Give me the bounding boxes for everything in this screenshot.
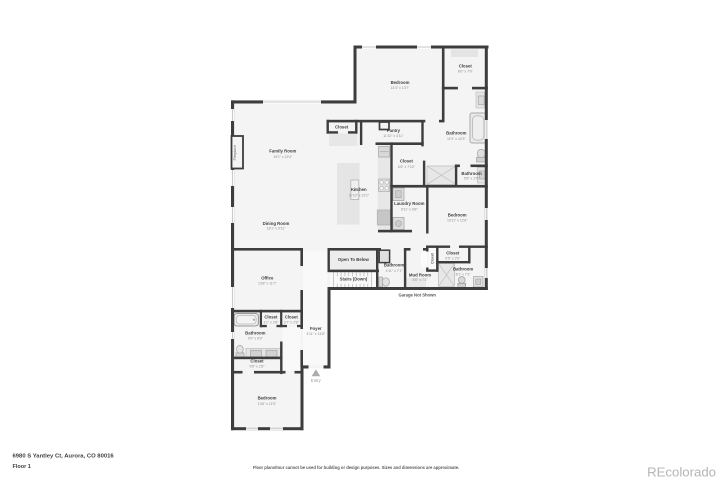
svg-text:6'11" x 8'8": 6'11" x 8'8" <box>401 207 418 211</box>
svg-text:Closet: Closet <box>250 358 264 363</box>
svg-text:5'5" x 2'0": 5'5" x 2'0" <box>445 256 461 260</box>
svg-text:Open To Below: Open To Below <box>338 257 370 262</box>
svg-text:Garage Not Shown: Garage Not Shown <box>398 292 436 297</box>
svg-text:Mud Room: Mud Room <box>409 273 431 278</box>
svg-text:5'6" x 7'1": 5'6" x 7'1" <box>412 278 428 282</box>
svg-text:Closet: Closet <box>431 252 435 264</box>
svg-text:10'11" x 12'8": 10'11" x 12'8" <box>447 219 468 223</box>
svg-text:Office: Office <box>261 276 274 281</box>
svg-text:Closet: Closet <box>264 314 278 319</box>
svg-text:REcolorado: REcolorado <box>647 465 716 480</box>
svg-text:Floor 1: Floor 1 <box>13 464 31 470</box>
svg-text:Bathroom: Bathroom <box>446 131 466 136</box>
svg-text:Laundry Room: Laundry Room <box>394 201 424 206</box>
svg-text:4'11" x 7'1": 4'11" x 7'1" <box>386 269 403 273</box>
svg-text:11'9" x 10'3": 11'9" x 10'3" <box>447 137 466 141</box>
svg-text:13'8" x 11'7": 13'8" x 11'7" <box>258 282 277 286</box>
svg-text:Bedroom: Bedroom <box>448 213 467 218</box>
svg-text:18'1" x 9'11": 18'1" x 9'11" <box>267 227 286 231</box>
svg-text:Bathroom: Bathroom <box>453 266 473 271</box>
svg-text:8'0" x 7'6": 8'0" x 7'6" <box>458 69 474 73</box>
svg-text:Dining Room: Dining Room <box>263 221 290 226</box>
svg-text:Closet: Closet <box>446 251 460 256</box>
svg-text:8'1" x 7'1": 8'1" x 7'1" <box>456 272 472 276</box>
svg-text:Closet: Closet <box>285 314 299 319</box>
svg-text:Floor plans/tour cannot be use: Floor plans/tour cannot be used for buil… <box>253 465 459 470</box>
svg-text:Kitchen: Kitchen <box>351 187 367 192</box>
svg-text:Closet: Closet <box>459 63 473 68</box>
svg-text:11'10" x 3'11": 11'10" x 3'11" <box>383 134 404 138</box>
svg-text:4'11" x 13'8": 4'11" x 13'8" <box>306 332 325 336</box>
svg-text:Entry: Entry <box>311 378 322 383</box>
svg-text:6'6" x 7'10": 6'6" x 7'10" <box>398 165 416 169</box>
svg-text:Fireplace: Fireplace <box>233 145 237 161</box>
svg-text:Closet: Closet <box>335 124 349 129</box>
svg-text:3'1" x 2'8": 3'1" x 2'8" <box>263 320 279 324</box>
svg-text:5'8" x 2'5": 5'8" x 2'5" <box>464 177 480 181</box>
svg-text:Bathroom: Bathroom <box>461 171 481 176</box>
svg-text:Pantry: Pantry <box>387 128 401 133</box>
svg-text:Bedroom: Bedroom <box>258 396 277 401</box>
svg-text:Bathroom: Bathroom <box>245 330 265 335</box>
svg-text:Foyer: Foyer <box>310 326 322 331</box>
svg-text:Bedroom: Bedroom <box>391 80 410 85</box>
svg-text:14'3" x 13'7": 14'3" x 13'7" <box>391 86 411 90</box>
svg-text:Bathroom: Bathroom <box>384 263 404 268</box>
svg-text:13'8" x 11'5": 13'8" x 11'5" <box>258 402 277 406</box>
svg-text:Closet: Closet <box>400 159 414 164</box>
svg-text:19'1" x 19'4": 19'1" x 19'4" <box>273 155 293 159</box>
svg-text:9'6" x 2'8": 9'6" x 2'8" <box>249 365 265 369</box>
svg-text:Stairs (Down): Stairs (Down) <box>340 277 368 282</box>
svg-text:6980 S Yantley Ct, Aurora, CO: 6980 S Yantley Ct, Aurora, CO 80016 <box>13 454 115 460</box>
svg-text:Family Room: Family Room <box>269 149 296 154</box>
svg-text:3'7" x 2'8": 3'7" x 2'8" <box>284 320 300 324</box>
svg-text:11'10" x 23'2": 11'10" x 23'2" <box>349 193 370 197</box>
svg-text:9'9" x 8'9": 9'9" x 8'9" <box>248 337 264 341</box>
